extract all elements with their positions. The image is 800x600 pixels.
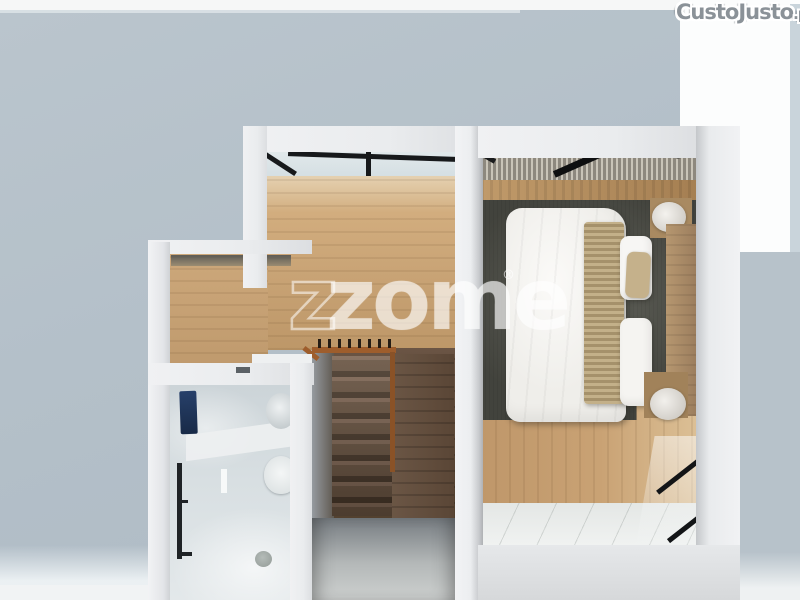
hall-top-wall [243, 126, 483, 152]
towel-rail [177, 463, 182, 559]
towel-rail-stub-lower [177, 552, 192, 556]
listing-photo-3d-floorplan: z zome ® CustoJusto.pt [0, 0, 800, 600]
hall-window-mullion [366, 149, 371, 176]
stair-balusters [318, 339, 392, 348]
towel-rail-stub [177, 500, 188, 503]
floor-drain [255, 551, 272, 567]
bathroom-right-wall [290, 363, 312, 600]
bathroom-wall-slot [236, 367, 250, 373]
hall-wood-floor [265, 174, 457, 350]
backdrop-ceiling-strip-edge [0, 10, 520, 13]
outer-left-wall [148, 242, 170, 600]
bed-throw-runner [584, 222, 624, 404]
backdrop-floor-white-left [0, 585, 148, 600]
corridor-glass-shadow [171, 255, 291, 266]
backdrop-right-edge [790, 4, 800, 252]
stair-lower-landing [312, 518, 455, 600]
shower-fixture [221, 469, 227, 493]
hall-left-wall [243, 126, 267, 288]
stair-handrail-vertical [390, 352, 395, 472]
bedroom-bottom-wall [478, 545, 740, 600]
table-lamp-bottom [650, 388, 686, 420]
bedroom-top-wall [478, 126, 704, 158]
stair-steps [332, 356, 392, 516]
corridor-top-wall [148, 240, 312, 254]
navy-towel [179, 391, 197, 435]
hall-bedroom-divider-wall [455, 126, 483, 600]
backdrop-floor-glow-right [740, 552, 800, 600]
bedroom-right-wall [696, 126, 740, 600]
bed-pillow-beige [625, 251, 651, 298]
stairwell-wall-shadow [312, 352, 334, 520]
stairwell-side-panel [392, 354, 454, 520]
